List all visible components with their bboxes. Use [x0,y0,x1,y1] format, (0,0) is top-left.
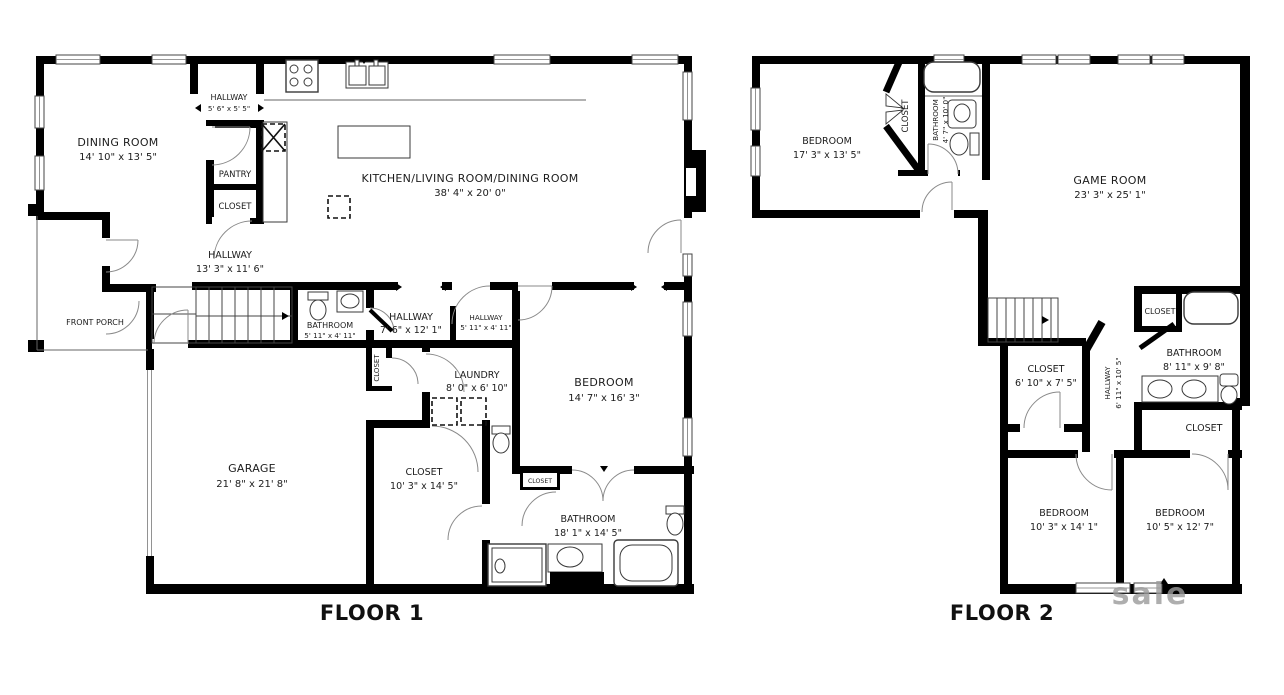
svg-text:10' 3" x 14' 1": 10' 3" x 14' 1" [1030,522,1098,533]
svg-text:14' 10" x 13' 5": 14' 10" x 13' 5" [79,152,157,163]
svg-text:14' 7" x 16' 3": 14' 7" x 16' 3" [568,393,640,404]
svg-text:BATHROOM: BATHROOM [561,514,616,525]
label-closet-right: CLOSET [1186,423,1223,434]
svg-text:5' 6" x 5' 5": 5' 6" x 5' 5" [208,104,250,113]
staircase-floor2 [988,298,1058,342]
svg-text:HALLWAY: HALLWAY [1103,366,1112,400]
floor-plan-svg: sale DINING ROOM 14' 10" x 13' 5" HALLWA… [0,0,1284,695]
label-hallway-floor2: HALLWAY 6' 11" x 10' 5" [1103,357,1123,408]
bathtub-icon [924,62,980,92]
svg-text:6' 10" x 7' 5": 6' 10" x 7' 5" [1015,378,1077,389]
front-porch-outline [37,216,148,350]
svg-text:HALLWAY: HALLWAY [208,250,252,261]
label-front-porch: FRONT PORCH [66,318,124,327]
svg-text:23' 3" x 25' 1": 23' 3" x 25' 1" [1074,190,1146,201]
svg-text:5' 11" x 4' 11": 5' 11" x 4' 11" [460,323,511,332]
svg-text:21' 8" x 21' 8": 21' 8" x 21' 8" [216,479,288,490]
laundry-fixtures [432,398,510,453]
label-closet-bedroom1: CLOSET [901,99,911,133]
svg-text:KITCHEN/LIVING ROOM/DINING ROO: KITCHEN/LIVING ROOM/DINING ROOM [361,172,578,185]
svg-text:BATHROOM: BATHROOM [307,321,353,330]
label-bathroom-master: BATHROOM 18' 1" x 14' 5" [554,514,622,539]
svg-text:BATHROOM: BATHROOM [931,99,940,141]
label-closet-bath: CLOSET [1144,307,1175,316]
svg-text:BEDROOM: BEDROOM [1039,508,1089,519]
svg-text:GARAGE: GARAGE [228,462,276,475]
label-laundry: LAUNDRY 8' 0" x 6' 10" [446,370,508,394]
svg-text:38' 4" x 20' 0": 38' 4" x 20' 0" [434,188,506,199]
label-kitchen-living: KITCHEN/LIVING ROOM/DINING ROOM 38' 4" x… [361,172,578,199]
toilet-tank [1220,374,1238,386]
svg-text:10' 5" x 12' 7": 10' 5" x 12' 7" [1146,522,1214,533]
label-game-room: GAME ROOM 23' 3" x 25' 1" [1073,174,1146,201]
bathtub-icon [614,540,678,586]
label-closet-small: CLOSET [528,478,552,485]
svg-text:BEDROOM: BEDROOM [1155,508,1205,519]
label-closet-master: CLOSET 10' 3" x 14' 5" [390,467,458,492]
svg-text:GAME ROOM: GAME ROOM [1073,174,1146,187]
label-hall-closet: CLOSET [373,354,381,382]
toilet-icon [1221,386,1237,404]
label-bathroom2-floor2: BATHROOM 8' 11" x 9' 8" [1163,348,1225,373]
svg-text:8' 11" x 9' 8": 8' 11" x 9' 8" [1163,362,1225,373]
label-bathroom-small: BATHROOM 5' 11" x 4' 11" [304,321,355,340]
shower-icon [488,544,546,586]
toilet-tank [970,133,979,155]
svg-text:10' 3" x 14' 5": 10' 3" x 14' 5" [390,481,458,492]
floor-plan-page: sale DINING ROOM 14' 10" x 13' 5" HALLWA… [0,0,1284,695]
floor1-title: FLOOR 1 [320,601,424,625]
toilet-icon [666,506,684,535]
svg-text:HALLWAY: HALLWAY [211,93,248,102]
svg-text:LAUNDRY: LAUNDRY [454,370,499,381]
watermark: sale [1112,577,1189,612]
label-hallway-mid: HALLWAY 7' 6" x 12' 1" [380,312,442,336]
label-bedroom2: BEDROOM 10' 3" x 14' 1" [1030,508,1098,533]
label-hallway-small: HALLWAY 5' 11" x 4' 11" [460,313,511,332]
svg-text:18' 1" x 14' 5": 18' 1" x 14' 5" [554,528,622,539]
label-bedroom3: BEDROOM 10' 5" x 12' 7" [1146,508,1214,533]
label-hallway-top: HALLWAY 5' 6" x 5' 5" [208,93,250,113]
dashed-appliance-box [328,196,350,218]
toilet-icon [950,133,968,155]
svg-text:HALLWAY: HALLWAY [389,312,433,323]
kitchen-island [338,126,410,158]
label-bedroom1-floor2: BEDROOM 17' 3" x 13' 5" [793,136,861,161]
label-pantry-closet: CLOSET [218,202,252,212]
svg-text:8' 0" x 6' 10": 8' 0" x 6' 10" [446,383,508,394]
bathtub-icon [1184,292,1238,324]
svg-text:5' 11" x 4' 11": 5' 11" x 4' 11" [304,331,355,340]
label-pantry: PANTRY [219,170,252,180]
svg-text:BEDROOM: BEDROOM [802,136,852,147]
label-bedroom-floor1: BEDROOM 14' 7" x 16' 3" [568,376,640,404]
svg-text:CLOSET: CLOSET [406,467,443,478]
kitchen-sink-icon [346,60,388,88]
label-dining-room: DINING ROOM 14' 10" x 13' 5" [77,136,158,163]
floor2-title: FLOOR 2 [950,601,1054,625]
kitchen-fixtures [262,60,586,222]
svg-text:CLOSET: CLOSET [1028,364,1065,375]
bathroom-small-fixtures [308,291,363,320]
floor1-opening-markers [195,58,667,472]
svg-text:6' 11" x 10' 5": 6' 11" x 10' 5" [1114,357,1123,408]
svg-text:4' 7" x 10' 0": 4' 7" x 10' 0" [941,97,950,144]
svg-text:HALLWAY: HALLWAY [469,313,503,322]
stove-icon [286,60,318,92]
vanity-sink-icon [548,544,604,586]
svg-text:13' 3" x 11' 6": 13' 3" x 11' 6" [196,264,264,275]
svg-text:7' 6" x 12' 1": 7' 6" x 12' 1" [380,325,442,336]
svg-text:BEDROOM: BEDROOM [574,376,634,389]
svg-text:DINING ROOM: DINING ROOM [77,136,158,149]
label-closet-floor2: CLOSET 6' 10" x 7' 5" [1015,364,1077,389]
label-bathroom1-floor2: BATHROOM 4' 7" x 10' 0" [931,97,950,144]
staircase-floor1 [152,287,292,343]
label-hallway-main: HALLWAY 13' 3" x 11' 6" [196,250,264,275]
svg-text:BATHROOM: BATHROOM [1167,348,1222,359]
svg-text:17' 3" x 13' 5": 17' 3" x 13' 5" [793,150,861,161]
label-garage: GARAGE 21' 8" x 21' 8" [216,462,288,490]
